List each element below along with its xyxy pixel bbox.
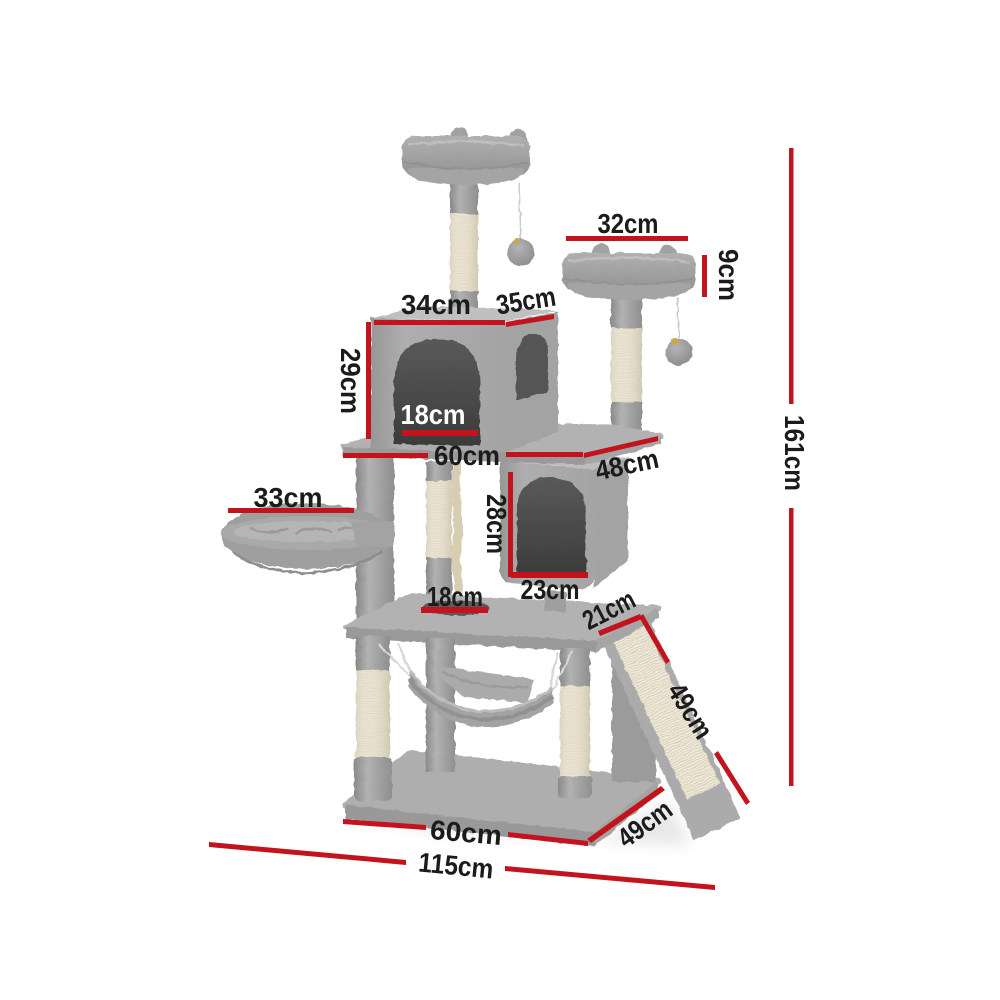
svg-text:34cm: 34cm: [401, 289, 471, 320]
svg-text:29cm: 29cm: [335, 348, 366, 414]
svg-text:60cm: 60cm: [434, 440, 500, 471]
svg-text:18cm: 18cm: [401, 399, 466, 430]
svg-text:28cm: 28cm: [481, 494, 512, 554]
svg-text:9cm: 9cm: [713, 249, 744, 301]
svg-text:33cm: 33cm: [254, 482, 323, 513]
svg-text:23cm: 23cm: [521, 574, 580, 605]
svg-text:60cm: 60cm: [429, 814, 503, 851]
svg-text:32cm: 32cm: [598, 208, 659, 239]
svg-text:161cm: 161cm: [779, 415, 810, 491]
svg-text:18cm: 18cm: [427, 581, 483, 612]
